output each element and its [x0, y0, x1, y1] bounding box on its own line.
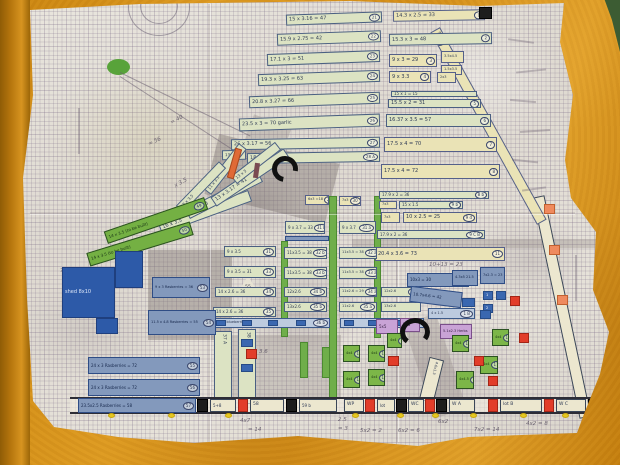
shed-wing: [115, 251, 143, 288]
bed-35a: 11x2.635 a: [339, 302, 377, 312]
blue-square: [216, 320, 226, 326]
bed-35L: 14 x 2.6 = 3635: [213, 307, 276, 317]
bed-6-number: 6: [480, 117, 489, 125]
yellow-dot: [562, 413, 569, 418]
bed-9cb: 17.9 x 2 = 369 C B: [377, 230, 485, 239]
black-marker: [436, 399, 447, 412]
strip-cell-label: lot B: [501, 403, 513, 408]
bed-37-label: 37 A: [221, 332, 226, 344]
bed-4x4-number: 18: [470, 376, 474, 384]
bed-3b: 3.5x4.5: [441, 51, 464, 63]
strip-cell: 5+8: [210, 399, 236, 412]
pencil-note: = 56: [146, 130, 177, 150]
bed-tobuild-1-number: 49: [192, 200, 205, 211]
strip-cell: WP: [344, 399, 364, 412]
bed-5: 15.5 x 2 = 315: [388, 99, 481, 108]
strip-cell-label: WP: [345, 403, 354, 408]
pencil-note-label: = 14: [246, 428, 261, 434]
bed-107x46-label: 10.7x4.6 = 42: [411, 292, 442, 300]
bed-29-label: 6x3 =18: [306, 198, 323, 202]
blue-square: [242, 320, 252, 326]
bed-22-label: 15.9 x 2.75 = 42: [278, 36, 322, 43]
pencil-note-label: 4x7: [238, 419, 250, 425]
bed-21-number: 21: [369, 13, 380, 21]
bed-34a-number: 34 a: [365, 288, 377, 296]
bed-4x15: 4 x 1.51 B: [428, 308, 475, 319]
bed-26-number: 26: [367, 116, 378, 124]
bed-rasp-56-number: 56: [187, 384, 198, 392]
bed-33L: 9 x 3.5 = 3133: [224, 266, 276, 278]
bed-3-number: 3: [426, 57, 435, 65]
pencil-squiggle: [512, 159, 538, 164]
pencil-note-label: = 56: [146, 137, 162, 148]
bed-8-number: 8: [489, 168, 498, 176]
bed-26-label: 23.5 x 3 = 70 garlic: [240, 121, 292, 128]
bed-46x13-label: 4.6x1.3: [431, 359, 438, 375]
orange-square: [544, 204, 555, 214]
strip-cell-label: 59 b: [300, 404, 311, 408]
bed-rasp-54-number: 54: [203, 319, 214, 327]
strip-cell: WC: [408, 399, 424, 412]
bed-3-label: 9 x 3 = 29: [390, 58, 418, 63]
bed-9d-label: 10 x 2.5 = 25: [404, 215, 440, 220]
survey-line-1: [120, 72, 251, 136]
bed-rasp-55-number: 55: [187, 362, 198, 370]
pencil-squiggle: [508, 38, 534, 44]
blue-square: 1: [483, 291, 493, 300]
strip-cell: lot: [377, 399, 395, 412]
strip-cell-label: WC: [409, 403, 419, 408]
pencil-note-label: = 40: [168, 115, 184, 127]
bed-9cb-label: 17.9 x 2 = 36: [378, 233, 407, 237]
red-marker: [238, 399, 248, 412]
pencil-note-label: 10+13 = 23: [427, 263, 463, 269]
bed-33L-label: 9 x 3.5 = 31: [225, 270, 252, 274]
red-square: [246, 349, 257, 359]
bed-3b-label: 3.5x4.5: [442, 55, 457, 59]
bed-34a: 11x2.6 = 2934 a: [339, 287, 377, 297]
bed-31a-number: 31 a: [359, 224, 374, 232]
pencil-note: 2.5: [336, 417, 352, 424]
bed-5-label: 15.5 x 2 = 31: [389, 101, 425, 106]
pencil-note: = 14: [246, 427, 268, 434]
bed-22-number: 22: [368, 32, 379, 40]
bed-9b2-number: 9 b: [449, 201, 461, 209]
bed-7-label: 17.5 x 4 = 70: [385, 142, 421, 147]
bed-4x15-number: 1 B: [460, 310, 473, 318]
bed-4x4: 4x414: [368, 369, 385, 386]
bed-4x4: 4x416: [492, 329, 509, 346]
bed-4x4-label: 4x4: [369, 352, 378, 356]
bed-5x5: 5x5: [376, 319, 398, 334]
bed-31L-label: 9 x 3.5: [225, 250, 241, 254]
bed-33a-label: 11x3.5 = 38: [340, 271, 364, 275]
orange-square: [549, 245, 560, 255]
graph-paper-plan: 709 b= 40= 56x 3.573 7415 x 3.16 = 47211…: [0, 0, 620, 465]
bed-tobuild-2-number: 50: [178, 225, 191, 236]
shed-main-label: shed 8x10: [63, 290, 91, 295]
black-marker: [286, 399, 297, 412]
strip-cell: W A: [449, 399, 475, 412]
bed-23: 17.1 x 3 = 5123: [267, 50, 380, 66]
photo-of-garden-plan: 709 b= 40= 56x 3.573 7415 x 3.16 = 47211…: [0, 0, 620, 465]
bed-9b2-label: 15 x 1.5: [400, 203, 418, 207]
bed-9cb-number: 9 C B: [466, 231, 483, 239]
strip-cell-label: 58: [251, 403, 259, 408]
pencil-note: 6x2: [436, 419, 454, 426]
bed-38-label: 38: [245, 330, 250, 338]
pencil-note: 5x2 = 2: [358, 428, 388, 435]
bed-6: 16.37 x 3.5 = 576: [386, 114, 491, 127]
bed-11-label: 20.4 x 3.6 = 73: [376, 252, 417, 257]
bed-37: 37 A: [214, 331, 232, 403]
blue-strip: [285, 236, 329, 241]
bed-2-label: 15.3 x 3 = 48: [390, 37, 426, 43]
red-square: [488, 376, 498, 386]
bed-4x4-number: 17: [491, 361, 498, 369]
pencil-note-label: = 3: [336, 427, 348, 433]
pencil-note-label: 6x2: [436, 420, 448, 426]
bed-36R-label: 12x2.6: [382, 290, 396, 294]
green-path-4: [300, 342, 308, 378]
bed-34b-number: 34 b: [310, 288, 325, 296]
pencil-note: 4x7: [238, 418, 258, 425]
bed-15x1-label: 15 x 1 = 15: [392, 92, 418, 96]
bed-8: 17.5 x 4 = 728: [381, 164, 500, 179]
bed-4x4: 4x4.518: [456, 371, 474, 389]
pencil-note: 3.6: [257, 349, 271, 356]
pencil-note-label: 4x2 = 8: [524, 422, 548, 428]
bed-8b: 17.9 x 2 = 368 b: [379, 191, 489, 199]
yellow-dot: [352, 413, 359, 418]
bed-4x4-label: 4x4.5: [457, 378, 469, 382]
bed-7x23-label: 7x2.3 = 23: [481, 274, 502, 278]
bed-4b-label: 2x3: [438, 76, 447, 80]
bed-4x4-number: 10: [354, 350, 360, 358]
pencil-note: 4x2 = 8: [524, 421, 554, 428]
strip-cell-label: 5+8: [211, 404, 221, 408]
bed-15x1: 15 x 1 = 15: [391, 91, 477, 97]
pencil-note: = 3: [336, 426, 352, 433]
black-marker: [396, 399, 407, 412]
bed-27-number: 27: [367, 138, 378, 146]
bed-4x4-label: 4x4: [493, 336, 502, 340]
bed-1: 14.3 x 2.5 = 331: [393, 9, 485, 22]
red-square: [474, 356, 484, 366]
pencil-note: 6x2 = 6: [396, 428, 426, 435]
bed-4x4: 4x413: [343, 371, 360, 388]
bed-27: 26 x 3.17 = 5627: [231, 137, 380, 151]
bed-4x4-label: 4x4: [344, 378, 353, 382]
pencil-note-label: 5x2 = 2: [358, 429, 382, 435]
blue-square: [241, 339, 253, 347]
bed-21-label: 15 x 3.16 = 47: [287, 16, 327, 22]
blue-square: [496, 291, 506, 300]
strip-cell: 58: [250, 399, 284, 412]
bed-rasp-54-label: 11.5 x 4.8 Rasberries = 55: [149, 321, 198, 325]
bed-rasp-53: 9 x 3 Rasberries = 3653: [152, 277, 210, 298]
bed-4b: 2x3: [437, 72, 456, 83]
pencil-note-label: 6x2 = 6: [396, 429, 420, 435]
pencil-squiggle: [575, 255, 577, 301]
bed-8b-label: 17.9 x 2 = 36: [380, 193, 409, 197]
bed-5x5-label: 5x5: [377, 325, 386, 329]
bed-rasp-56: 24 x 3 Rasberries = 7256: [88, 379, 200, 396]
red-marker: [425, 399, 435, 412]
bed-herbs-label: 5.1x2.3 Herbs: [441, 330, 468, 334]
bed-34L-number: 34: [263, 288, 274, 296]
yellow-dot: [520, 413, 527, 418]
bed-22: 15.9 x 2.75 = 4222: [277, 30, 381, 46]
bed-32b-number: 32 b: [313, 249, 327, 257]
bed-34b-label: 12x2.6: [285, 290, 301, 294]
strip-cell-label: W A: [450, 403, 461, 408]
yellow-dot: [168, 413, 175, 418]
bed-rasp-55: 24 x 3 Rasberries = 7255: [88, 357, 200, 374]
red-marker: [365, 399, 375, 412]
pencil-squiggle: [516, 68, 546, 73]
bed-33a-number: 33 a: [365, 269, 377, 277]
blue-square-label: 1: [484, 294, 488, 298]
bed-rasp-57-number: 57: [183, 402, 194, 410]
bed-9b2: 15 x 1.59 b: [399, 201, 463, 209]
bed-4x4: 4x411: [368, 345, 385, 362]
blue-square: [344, 320, 354, 326]
bed-4-label: 9 x 3.3: [390, 75, 409, 80]
bed-8-label: 17.5 x 4 = 72: [382, 169, 418, 174]
blue-square: [296, 320, 306, 326]
bed-5-number: 5: [470, 100, 479, 108]
pencil-note: 7x2 = 14: [472, 427, 506, 434]
bed-21: 15 x 3.16 = 4721: [286, 11, 382, 25]
bed-4x4-number: 16: [503, 334, 509, 342]
bed-8b-number: 8 b: [475, 191, 487, 199]
blue-square: [268, 320, 278, 326]
bed-25-label: 20.8 x 3.27 = 66: [250, 98, 294, 105]
bed-33b-label: 11x3.5 = 38: [285, 271, 312, 275]
bed-1-label: 14.3 x 2.5 = 33: [394, 13, 435, 19]
pencil-note-label: x 3.5: [172, 178, 188, 191]
bed-35L-label: 14 x 2.6 = 36: [214, 310, 243, 314]
bed-2-number: 2: [481, 34, 490, 42]
bed-9a: 7x3: [379, 201, 397, 209]
bed-rasp-53-label: 9 x 3 Rasberries = 36: [153, 286, 193, 290]
bed-rasp-56-label: 24 x 3 Rasberries = 72: [89, 386, 137, 390]
bed-4x4-number: 11: [379, 350, 385, 358]
bed-11: 20.4 x 3.6 = 7311: [375, 247, 505, 261]
bed-4-number: 4: [420, 73, 429, 81]
green-path-1: [329, 196, 337, 402]
blue-square: [480, 310, 491, 319]
pencil-squiggle: [510, 99, 536, 103]
bed-23-number: 23: [367, 52, 378, 60]
bed-32a-label: 11x3.5 = 38: [340, 251, 364, 255]
pencil-squiggle: [78, 108, 80, 154]
bed-11-number: 11: [492, 250, 503, 258]
bed-23-label: 17.1 x 3 = 51: [268, 56, 304, 62]
bed-rasp-54: 11.5 x 4.8 Rasberries = 5554: [148, 310, 216, 335]
bed-30-label: 7x3: [340, 199, 349, 203]
blueberry-strip-number: 36 b: [313, 319, 328, 327]
bed-33L-number: 33: [263, 268, 274, 276]
bed-30-number: 30: [350, 197, 361, 205]
black-marker: [479, 7, 492, 19]
strip-cell: 59 b: [299, 399, 337, 412]
bed-3: 9 x 3 = 293: [389, 54, 437, 67]
bed-33a: 11x3.5 = 3833 a: [339, 267, 377, 279]
bed-4x4-number: 13: [354, 376, 360, 384]
bed-4x4-label: 4x4: [388, 339, 397, 343]
bed-9d-number: 9 d: [463, 214, 475, 222]
bed-24-number: 24: [367, 72, 378, 80]
pencil-note-label: 7x2 = 14: [472, 428, 499, 434]
blue-square: [462, 298, 475, 307]
bed-28a-number: 28 A: [363, 152, 378, 160]
bed-7: 17.5 x 4 = 707: [384, 137, 497, 152]
bed-43x5: 4.3x5 21.5: [452, 270, 478, 286]
bed-29: 6x3 =1829: [305, 195, 329, 205]
red-square: [388, 356, 399, 366]
bed-rasp-57: 23.5x2.5 Rasberries = 5857: [78, 398, 196, 413]
bed-7x23: 7x2.3 = 23: [480, 267, 505, 284]
green-path-5: [322, 347, 330, 378]
bed-4x4-number: 15: [463, 340, 469, 348]
bed-4x4: 4x415: [452, 335, 469, 352]
bed-4x4: 4x410: [343, 345, 360, 362]
bed-29-number: 29: [324, 196, 329, 204]
bed-6-label: 16.37 x 3.5 = 57: [387, 118, 431, 123]
bed-7-number: 7: [486, 141, 495, 149]
bed-31b: 9 x 3.7 = 3331 b: [285, 221, 325, 234]
bed-10x3-label: 10x3 = 30: [408, 278, 431, 282]
yellow-dot: [108, 413, 115, 418]
bed-35b-label: 13x2.6: [285, 305, 301, 309]
crease-horizontal: [30, 212, 575, 214]
bed-25: 20.8 x 3.27 = 6625: [249, 92, 380, 109]
bed-31b-label: 9 x 3.7 = 33: [286, 226, 313, 230]
plan-items-layer: 709 b= 40= 56x 3.573 7415 x 3.16 = 47211…: [0, 0, 620, 465]
bed-9c: 7x3: [381, 212, 400, 223]
crease-vertical-1: [208, 4, 210, 444]
bed-24-label: 19.3 x 3.25 = 63: [259, 76, 303, 83]
bed-34a-label: 11x2.6 = 29: [340, 290, 364, 294]
bed-43x5-label: 4.3x5 21.5: [453, 276, 474, 280]
bed-37R: 13x2.6: [381, 302, 421, 312]
pencil-note-label: 3.6: [257, 350, 268, 356]
bed-9c-label: 7x3: [382, 216, 391, 220]
bed-9a-label: 7x3: [380, 203, 389, 207]
yellow-dot: [397, 413, 404, 418]
bed-37R-label: 13x2.6: [382, 305, 396, 309]
bed-34L: 14 x 2.6 = 3634: [215, 287, 276, 297]
bed-4x4-number: 14: [379, 374, 385, 382]
shed-tab: [96, 318, 118, 334]
bed-35a-number: 35 a: [360, 303, 375, 311]
pencil-squiggle: [520, 129, 550, 133]
pencil-note: 10+13 = 23: [427, 262, 471, 269]
bed-25-number: 25: [367, 94, 378, 102]
bed-32b: 11x3.5 = 3832 b: [284, 247, 327, 259]
yellow-dot: [225, 413, 232, 418]
bed-35a-label: 11x2.6: [340, 305, 354, 309]
bed-31L-number: 31: [263, 248, 274, 256]
bed-35L-number: 35: [263, 308, 274, 316]
orange-square: [557, 295, 568, 305]
bed-31a-label: 9 x 3.7: [340, 226, 356, 230]
bed-4x4-label: 4x4: [369, 376, 378, 380]
bed-rasp-55-label: 24 x 3 Rasberries = 72: [89, 364, 137, 368]
strip-cell: W C: [556, 399, 586, 412]
bed-4x4-label: 4x4: [344, 352, 353, 356]
blue-square: [241, 364, 253, 372]
red-marker: [544, 399, 554, 412]
bed-34L-label: 14 x 2.6 = 36: [216, 290, 245, 294]
bed-32a: 11x3.5 = 3832 a: [339, 247, 377, 259]
bed-30: 7x330: [339, 196, 361, 206]
strip-cell-label: lot: [378, 404, 385, 408]
bed-4x15-label: 4 x 1.5: [429, 312, 443, 316]
bed-4: 9 x 3.34: [389, 71, 431, 83]
bed-9d: 10 x 2.5 = 259 d: [403, 212, 477, 223]
strip-cell: lot B: [500, 399, 542, 412]
bed-24: 19.3 x 3.25 = 6324: [258, 70, 380, 86]
bed-32b-label: 11x3.5 = 38: [285, 251, 312, 255]
shed-main: shed 8x10: [62, 267, 115, 318]
bed-34b: 12x2.634 b: [284, 287, 327, 297]
black-marker: [197, 399, 208, 412]
bed-33b: 11x3.5 = 3833 b: [284, 267, 327, 279]
bed-31b-number: 31 b: [314, 224, 325, 232]
path-right-edge: [533, 195, 592, 419]
yellow-dot: [470, 413, 477, 418]
pencil-note-label: 2.5: [336, 418, 347, 424]
strip-cell-label: W C: [557, 403, 568, 408]
bed-31a: 9 x 3.731 a: [339, 221, 376, 234]
bed-33b-number: 33 b: [313, 269, 327, 277]
bed-31L: 9 x 3.531: [224, 246, 276, 257]
bed-rasp-53-number: 53: [197, 284, 208, 292]
bed-35b: 13x2.635 b: [284, 302, 327, 312]
bed-35b-number: 35 b: [310, 303, 325, 311]
bed-32a-number: 32 a: [365, 249, 377, 257]
yellow-dot: [432, 413, 439, 418]
bed-4x4-label: 4x4: [453, 342, 462, 346]
red-square: [519, 333, 529, 343]
red-square: [510, 296, 520, 306]
red-marker: [488, 399, 498, 412]
bed-2: 15.3 x 3 = 482: [389, 32, 492, 46]
bed-rasp-57-label: 23.5x2.5 Rasberries = 58: [79, 404, 132, 408]
